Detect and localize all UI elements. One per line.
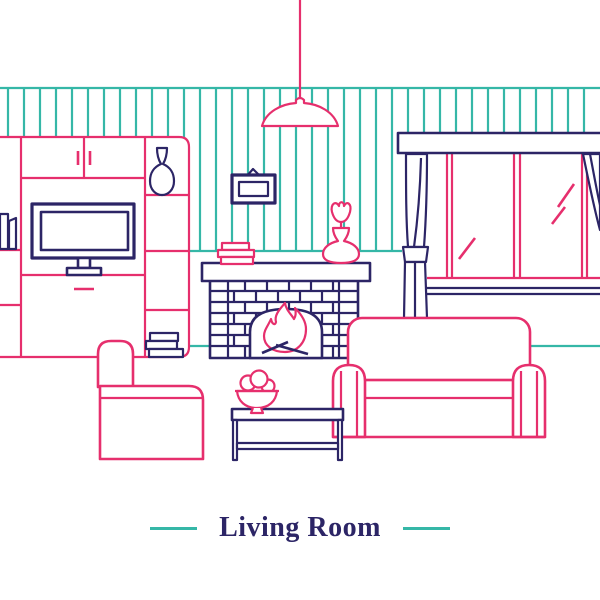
sofa <box>333 318 545 437</box>
window <box>398 133 600 318</box>
footer: Living Room <box>0 506 600 550</box>
sofa-armrest <box>513 365 545 437</box>
lamp-shade <box>262 98 338 126</box>
shelf-books <box>0 214 16 249</box>
mantel-shelf <box>202 263 370 281</box>
table-top <box>232 409 343 420</box>
armchair <box>98 341 203 459</box>
bowl <box>237 391 277 408</box>
picture-frame <box>232 169 275 203</box>
shelf-books <box>146 333 183 357</box>
pendant-lamp <box>262 0 338 126</box>
sofa-backrest <box>348 318 530 380</box>
fruit-bowl <box>235 371 279 414</box>
title-divider-left <box>150 527 197 530</box>
bowl-foot <box>251 408 263 413</box>
mantel-books <box>218 243 254 264</box>
page-title: Living Room <box>219 506 381 550</box>
wall-unit-with-tv <box>0 137 189 357</box>
table-shelf <box>237 443 338 449</box>
title-divider-right <box>403 527 450 530</box>
table-leg <box>338 420 342 460</box>
curtain-tie <box>403 247 428 262</box>
armchair-back <box>98 341 133 387</box>
table-leg <box>233 420 237 460</box>
cornice <box>398 133 600 153</box>
coffee-table <box>232 409 343 460</box>
